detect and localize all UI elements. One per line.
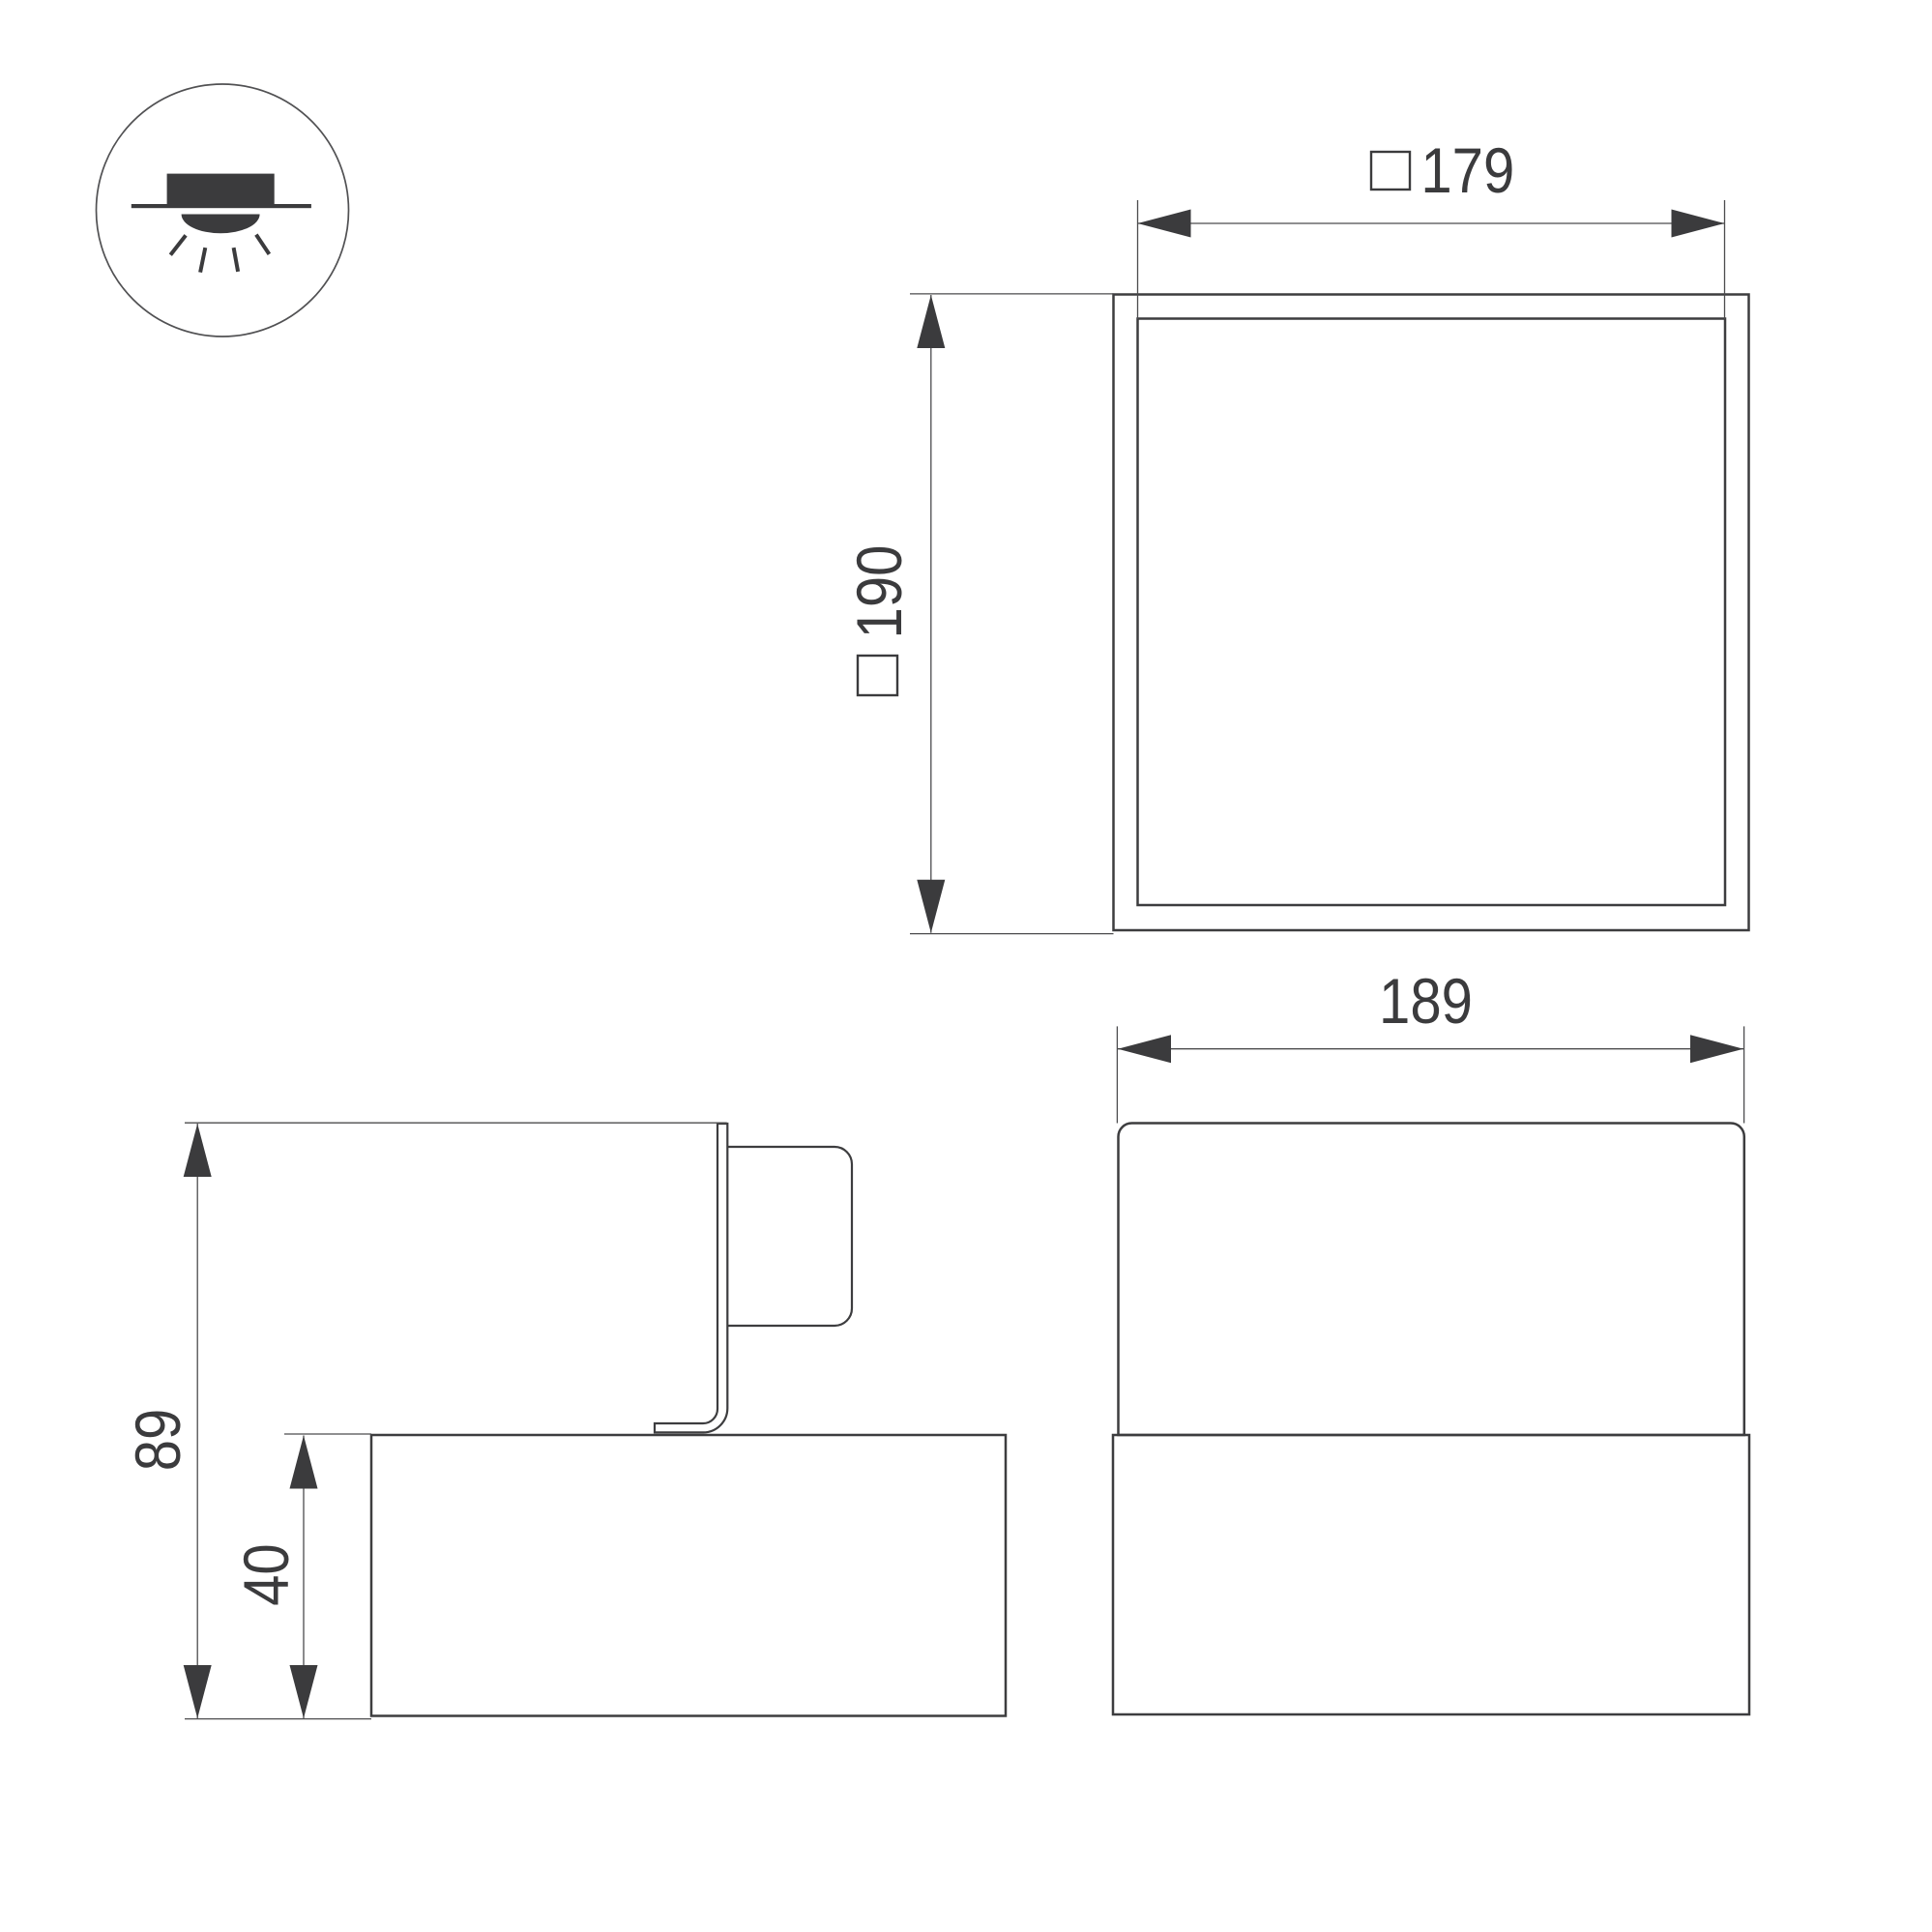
svg-text:190: 190 [845,545,916,639]
svg-text:179: 179 [1420,136,1514,207]
svg-text:40: 40 [232,1543,303,1606]
svg-text:189: 189 [1379,967,1473,1038]
svg-text:89: 89 [124,1409,194,1472]
